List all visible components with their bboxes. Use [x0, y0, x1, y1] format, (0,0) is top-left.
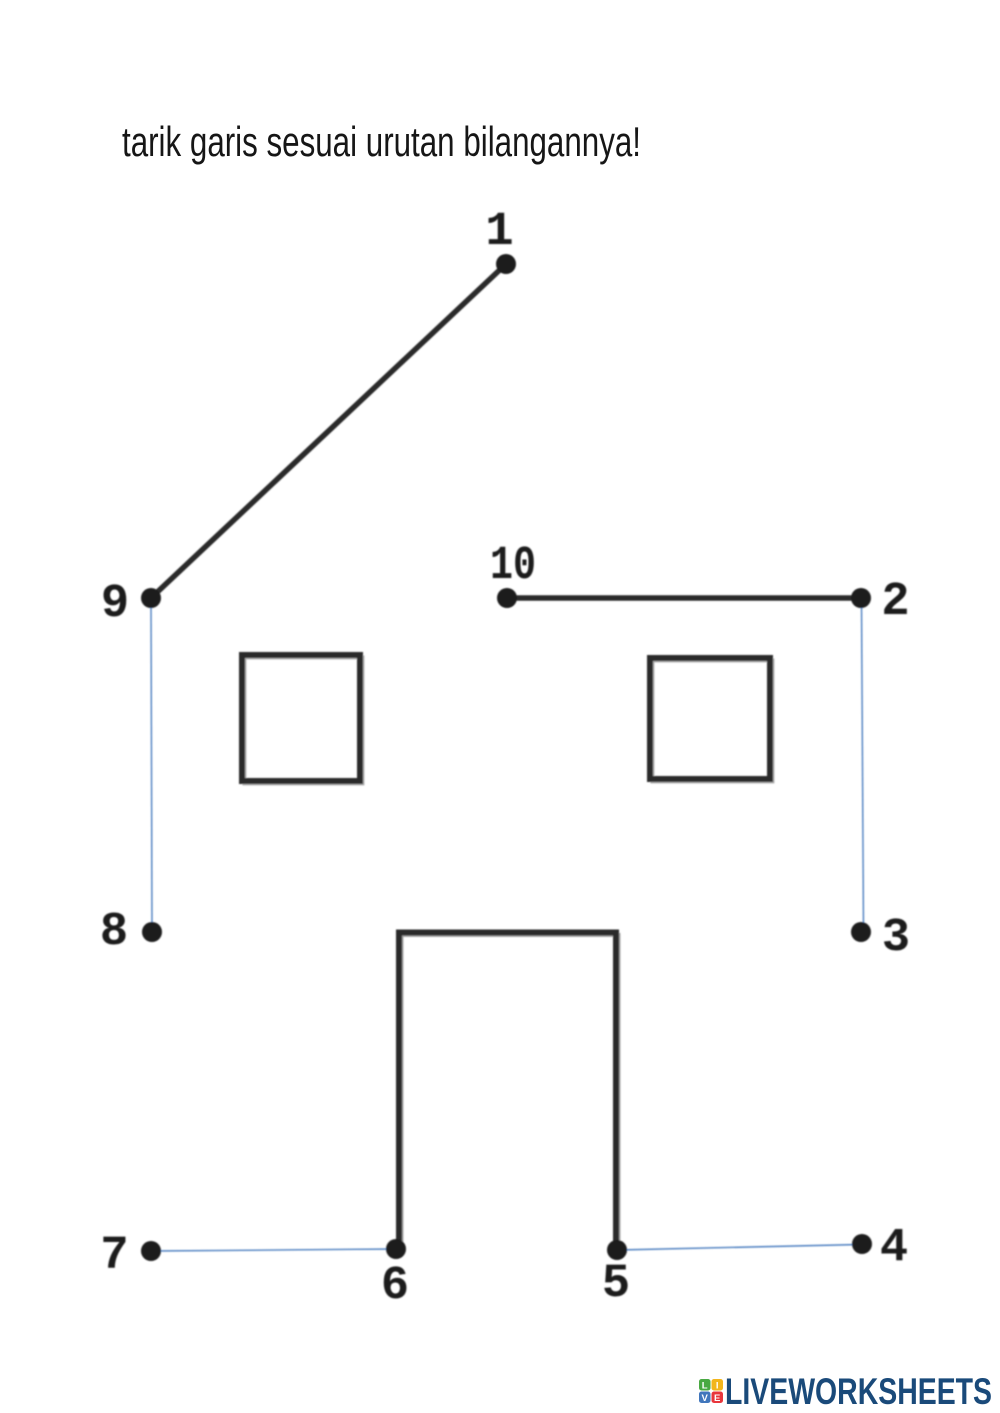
svg-text:8: 8 [100, 906, 128, 959]
svg-text:7: 7 [100, 1230, 128, 1283]
svg-text:V: V [702, 1393, 709, 1404]
svg-text:I: I [716, 1381, 719, 1392]
svg-text:L: L [702, 1381, 708, 1392]
svg-text:tarik garis sesuai urutan bila: tarik garis sesuai urutan bilangannya! [122, 118, 641, 165]
svg-text:LIVEWORKSHEETS: LIVEWORKSHEETS [725, 1371, 992, 1412]
svg-text:4: 4 [880, 1222, 908, 1275]
svg-text:2: 2 [881, 576, 909, 629]
svg-text:3: 3 [882, 912, 910, 965]
svg-text:E: E [714, 1393, 720, 1404]
svg-text:5: 5 [602, 1258, 630, 1311]
svg-text:1: 1 [485, 206, 513, 259]
svg-text:10: 10 [490, 540, 536, 593]
svg-text:9: 9 [101, 578, 129, 631]
svg-text:6: 6 [381, 1260, 409, 1313]
